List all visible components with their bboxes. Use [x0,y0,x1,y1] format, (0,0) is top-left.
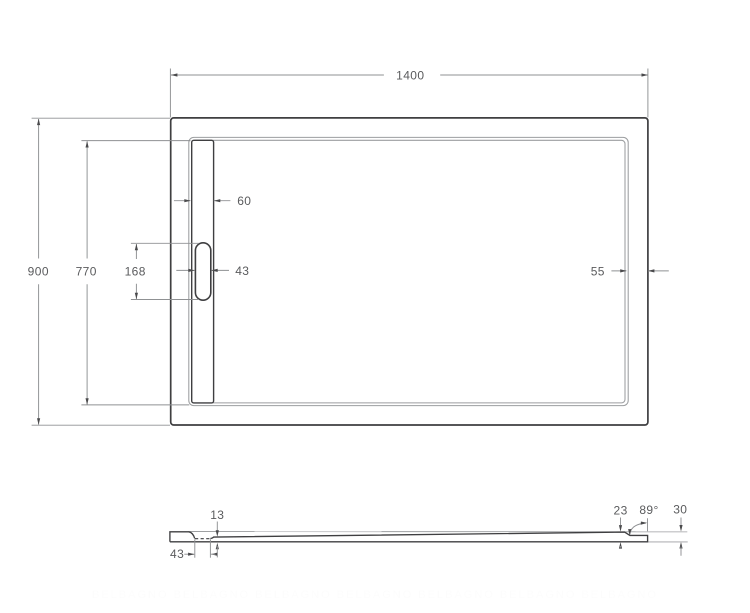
svg-text:60: 60 [237,194,251,208]
svg-text:1400: 1400 [396,68,424,82]
svg-text:43: 43 [170,547,184,561]
svg-text:89°: 89° [639,503,658,517]
svg-text:55: 55 [591,264,605,278]
svg-text:30: 30 [673,503,687,517]
svg-text:23: 23 [614,504,628,518]
svg-text:770: 770 [76,265,97,279]
svg-text:900: 900 [28,265,49,279]
svg-text:168: 168 [125,265,146,279]
svg-text:43: 43 [235,264,249,278]
svg-text:13: 13 [210,508,224,522]
svg-text:BELBAGNO BELBAGNO BELBAGNO BEL: BELBAGNO BELBAGNO BELBAGNO BELBAGNO BELB… [92,589,658,601]
